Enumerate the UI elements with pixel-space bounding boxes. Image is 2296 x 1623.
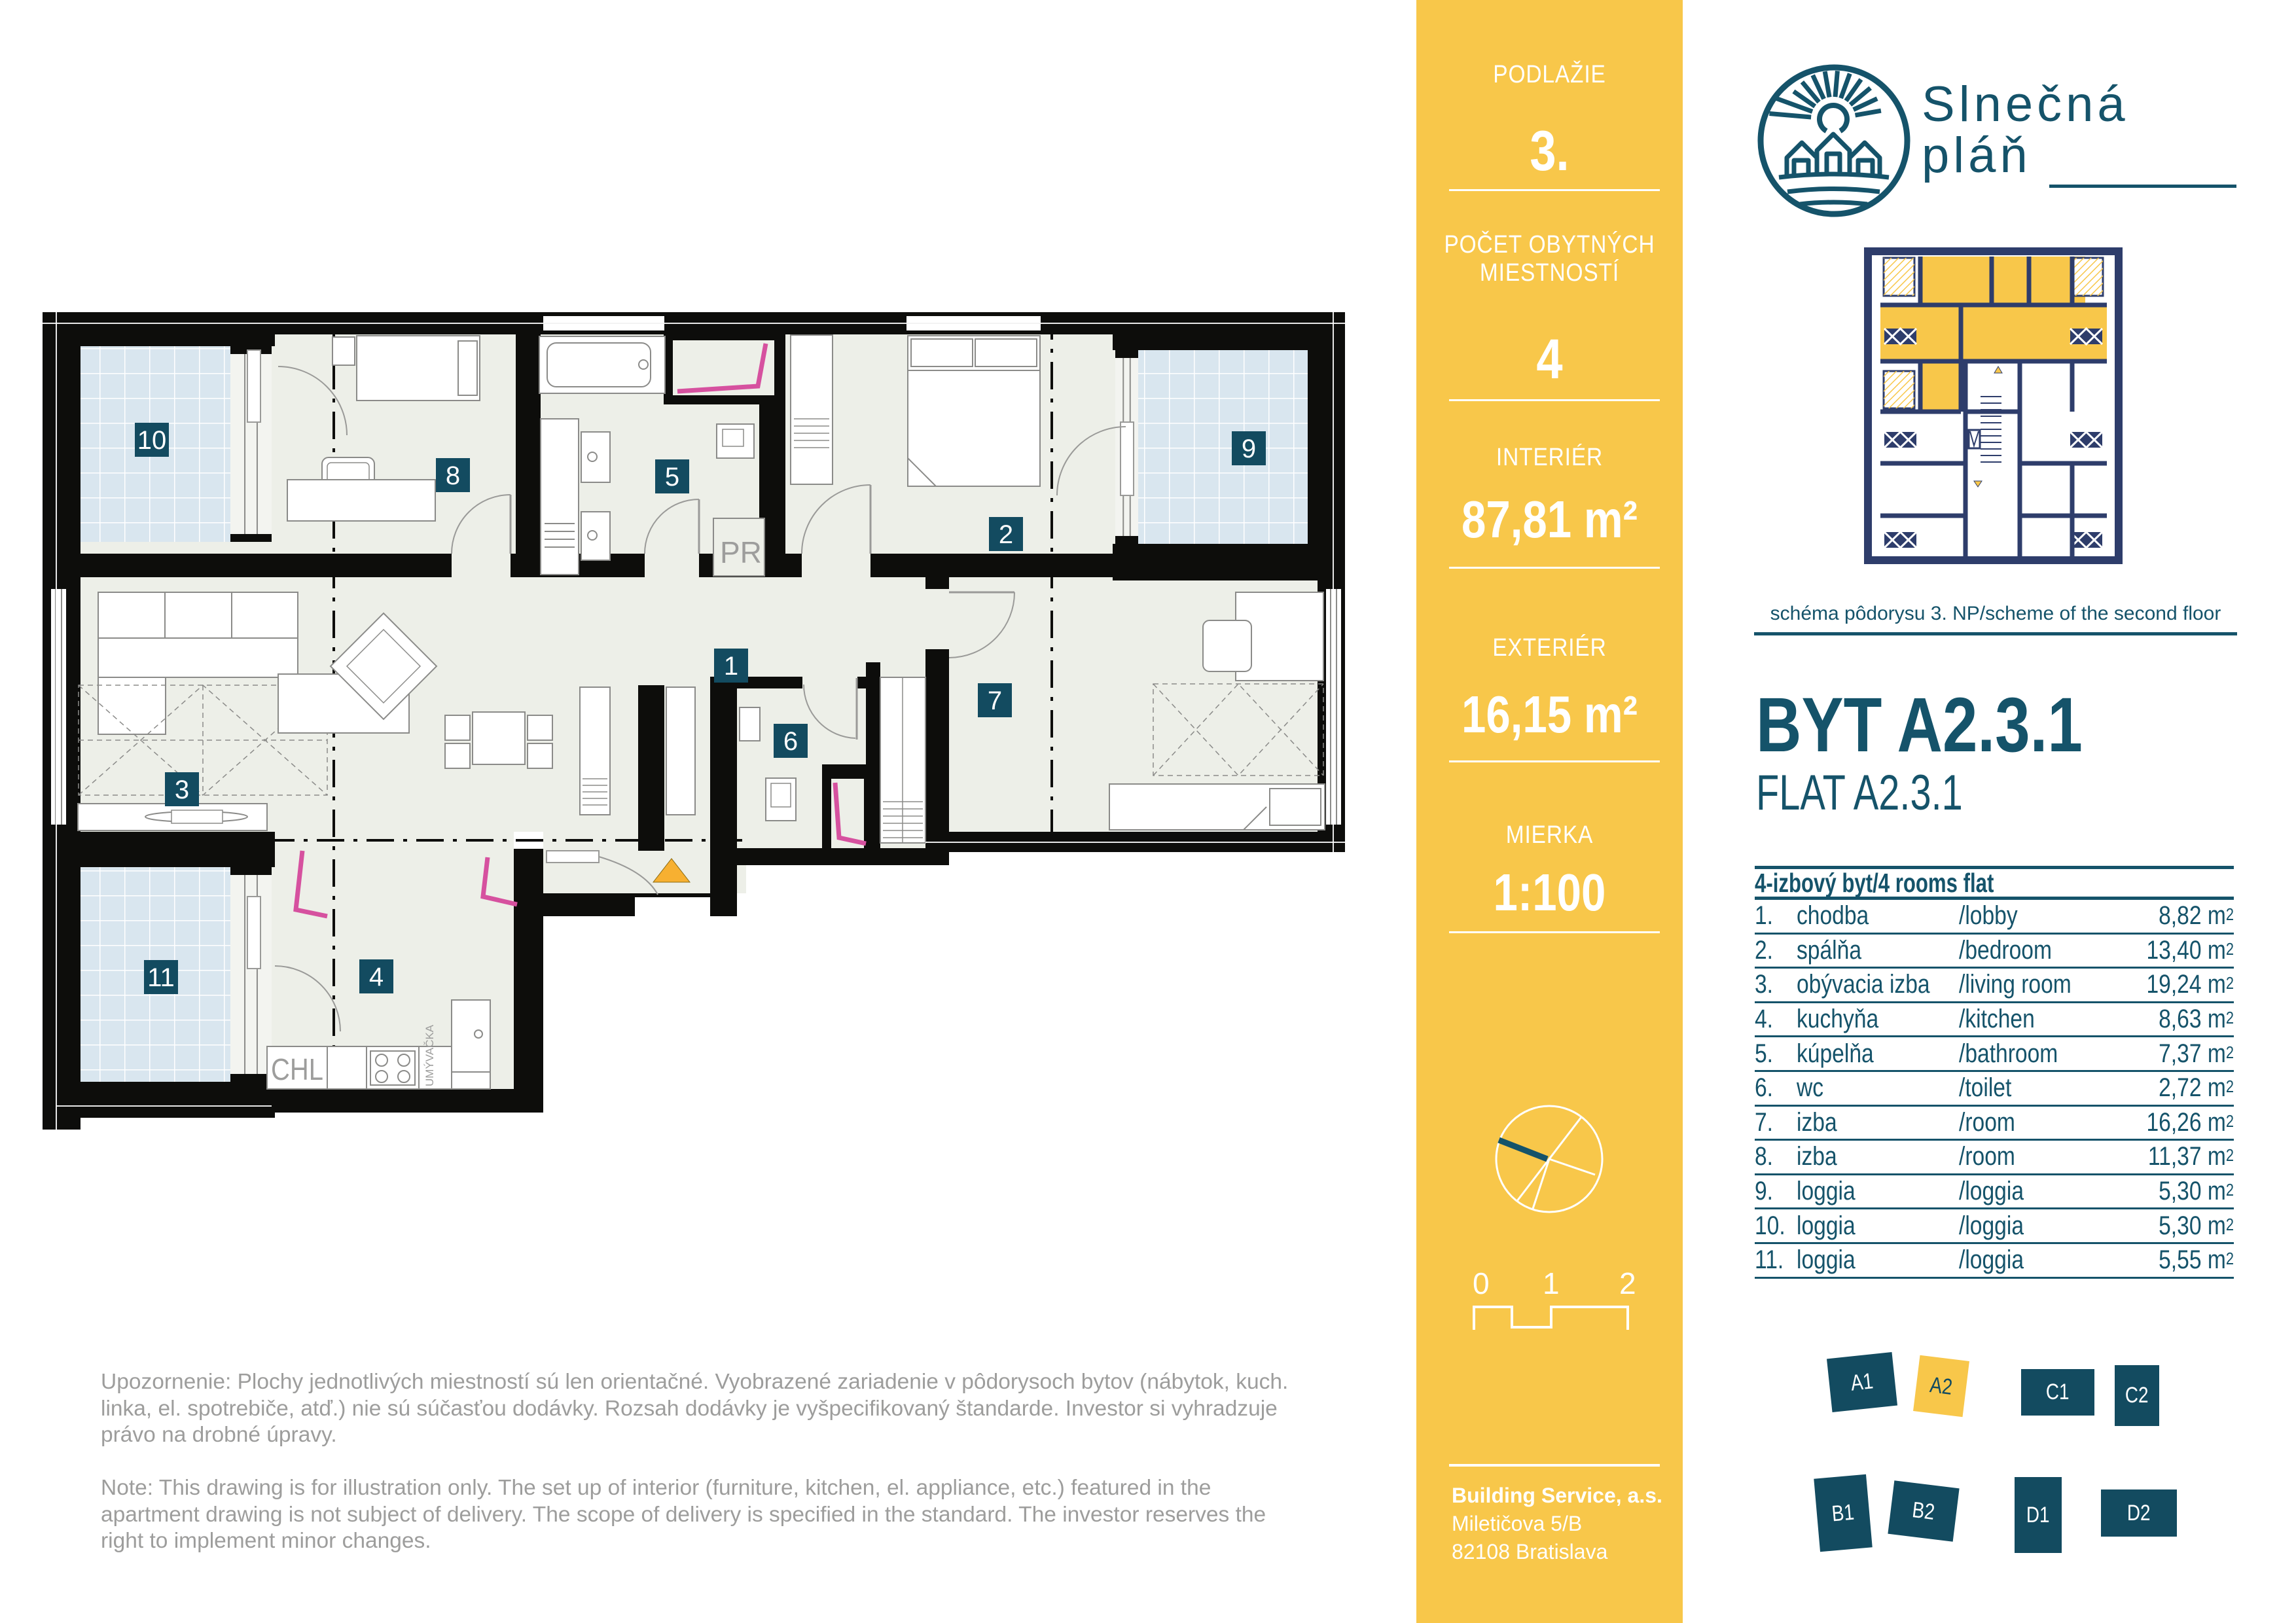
svg-text:2: 2 xyxy=(999,520,1013,549)
svg-text:3: 3 xyxy=(175,776,189,804)
svg-text:9: 9 xyxy=(1242,435,1256,463)
svg-text:PR: PR xyxy=(720,535,762,569)
svg-text:2: 2 xyxy=(1619,1266,1636,1300)
svg-text:10: 10 xyxy=(137,426,167,455)
svg-text:6: 6 xyxy=(783,727,798,756)
svg-text:CHL: CHL xyxy=(271,1052,323,1086)
svg-text:4: 4 xyxy=(369,963,384,991)
svg-text:7: 7 xyxy=(988,687,1002,715)
svg-text:UMÝVAČKA: UMÝVAČKA xyxy=(423,1024,436,1086)
svg-text:8: 8 xyxy=(446,461,460,490)
svg-text:0: 0 xyxy=(1473,1266,1490,1300)
svg-text:11: 11 xyxy=(147,963,175,992)
svg-text:1: 1 xyxy=(1543,1266,1560,1300)
svg-text:1: 1 xyxy=(724,652,738,681)
svg-text:5: 5 xyxy=(665,463,679,491)
